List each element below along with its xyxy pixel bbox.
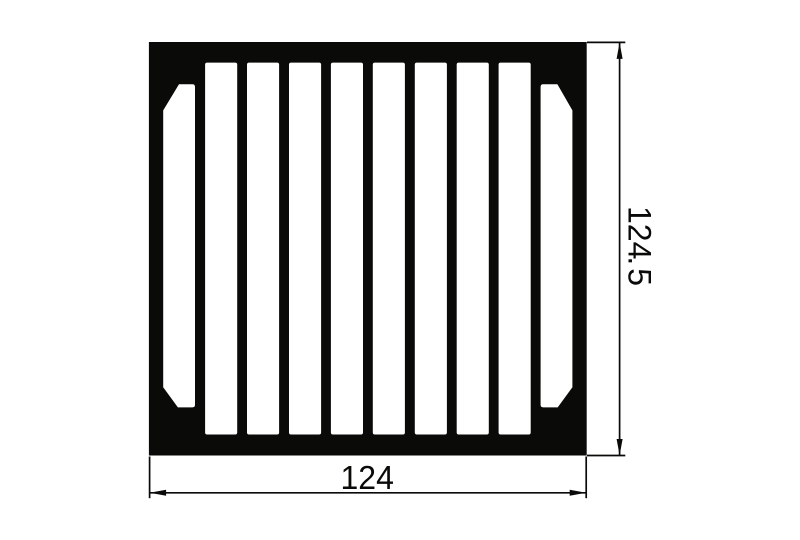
svg-text:124.5: 124.5 bbox=[621, 206, 657, 286]
svg-text:124: 124 bbox=[341, 460, 394, 497]
